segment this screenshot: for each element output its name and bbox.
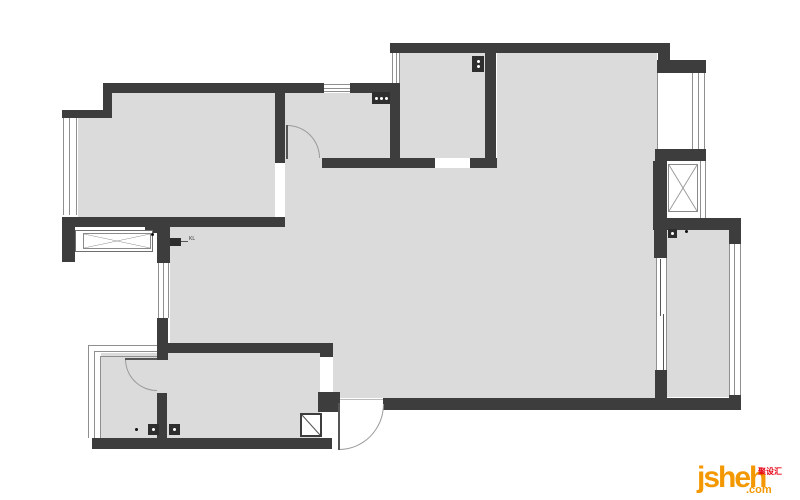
window-line [729, 244, 730, 397]
wall [62, 217, 285, 227]
floor-hallway [170, 227, 285, 343]
wall [655, 149, 706, 161]
symbol-kitchen-meter [668, 229, 677, 238]
bay-line [100, 356, 101, 438]
wall [320, 343, 333, 357]
wall [653, 218, 741, 230]
floor-plan-canvas: KL [0, 0, 800, 500]
window-line [63, 118, 64, 215]
door-entrance-leaf [338, 403, 340, 450]
floor-bedroom1-upper [112, 93, 285, 118]
wall [157, 343, 333, 353]
watermark: jsheh 聚设汇 .com [697, 463, 800, 500]
kl-arrow [180, 241, 188, 242]
window-line [734, 244, 735, 397]
ac-platform-left [83, 233, 151, 249]
window-line [392, 53, 393, 83]
wall [654, 230, 667, 258]
corner-column [300, 413, 322, 437]
window-line [76, 118, 77, 215]
window-line [163, 263, 164, 318]
label-kl: KL [189, 236, 203, 242]
wall [390, 93, 400, 168]
wall [92, 438, 332, 449]
bay-window-line [657, 73, 658, 149]
wall [318, 392, 340, 412]
sliding-door-frame [666, 258, 667, 370]
symbol-drain-2 [169, 424, 180, 435]
wall [657, 60, 706, 73]
bay-line [94, 351, 157, 352]
bay-window-line [692, 73, 693, 149]
bay-line [88, 345, 89, 438]
plan-dot [151, 233, 154, 236]
wall [383, 398, 741, 410]
window-line [740, 244, 741, 397]
floor-living-right [497, 53, 657, 398]
bay-window-line [705, 161, 706, 218]
wall [62, 110, 112, 118]
ac-platform-right [668, 164, 698, 212]
wall [655, 370, 667, 398]
floor-bedroom1 [78, 118, 285, 217]
bay-line [88, 345, 157, 346]
window-line [158, 263, 159, 318]
sliding-door-leaf [663, 314, 664, 371]
wall [485, 53, 496, 168]
bay-window-line [698, 73, 699, 149]
window-line [399, 53, 400, 83]
symbol-kl-box [170, 238, 181, 246]
wall [275, 93, 285, 163]
door-bath-top-leaf [286, 125, 288, 159]
wall [103, 83, 112, 113]
wall [157, 318, 168, 360]
wall [729, 230, 741, 244]
door-opening-bedroom1 [275, 163, 285, 217]
window-line [324, 91, 350, 92]
sliding-door-frame [656, 258, 657, 370]
wall [390, 158, 435, 168]
bay-line [100, 356, 157, 357]
symbol-stove [472, 56, 484, 72]
wall [390, 43, 665, 53]
plan-dot [685, 230, 688, 233]
plan-dot [135, 428, 138, 431]
wall [157, 227, 170, 263]
sliding-door-leaf [660, 259, 661, 316]
entrance-threshold [340, 399, 383, 400]
window-line [324, 88, 350, 89]
wall [322, 158, 400, 168]
wall [62, 227, 75, 262]
wall [470, 158, 497, 168]
window-line [396, 53, 397, 83]
window-line [69, 118, 70, 215]
bay-window-line [704, 73, 705, 149]
symbol-drain-1 [148, 424, 159, 435]
door-entrance-swing [339, 404, 384, 450]
floor-kitchen [667, 230, 729, 397]
watermark-tld: .com [746, 484, 772, 496]
symbol-washer [372, 92, 390, 104]
bay-window-line [700, 161, 701, 218]
floor-plan-screenshot: KL jsheh 聚设汇 .com [0, 0, 800, 500]
door-bath-left-leaf [125, 358, 157, 360]
door-opening-bedroom2 [320, 357, 333, 392]
window-line [324, 84, 350, 85]
wall [103, 83, 324, 93]
bay-line [94, 351, 95, 438]
watermark-cjk-text: 聚设汇 [758, 466, 782, 477]
window-line [168, 263, 169, 318]
wall [729, 395, 741, 410]
